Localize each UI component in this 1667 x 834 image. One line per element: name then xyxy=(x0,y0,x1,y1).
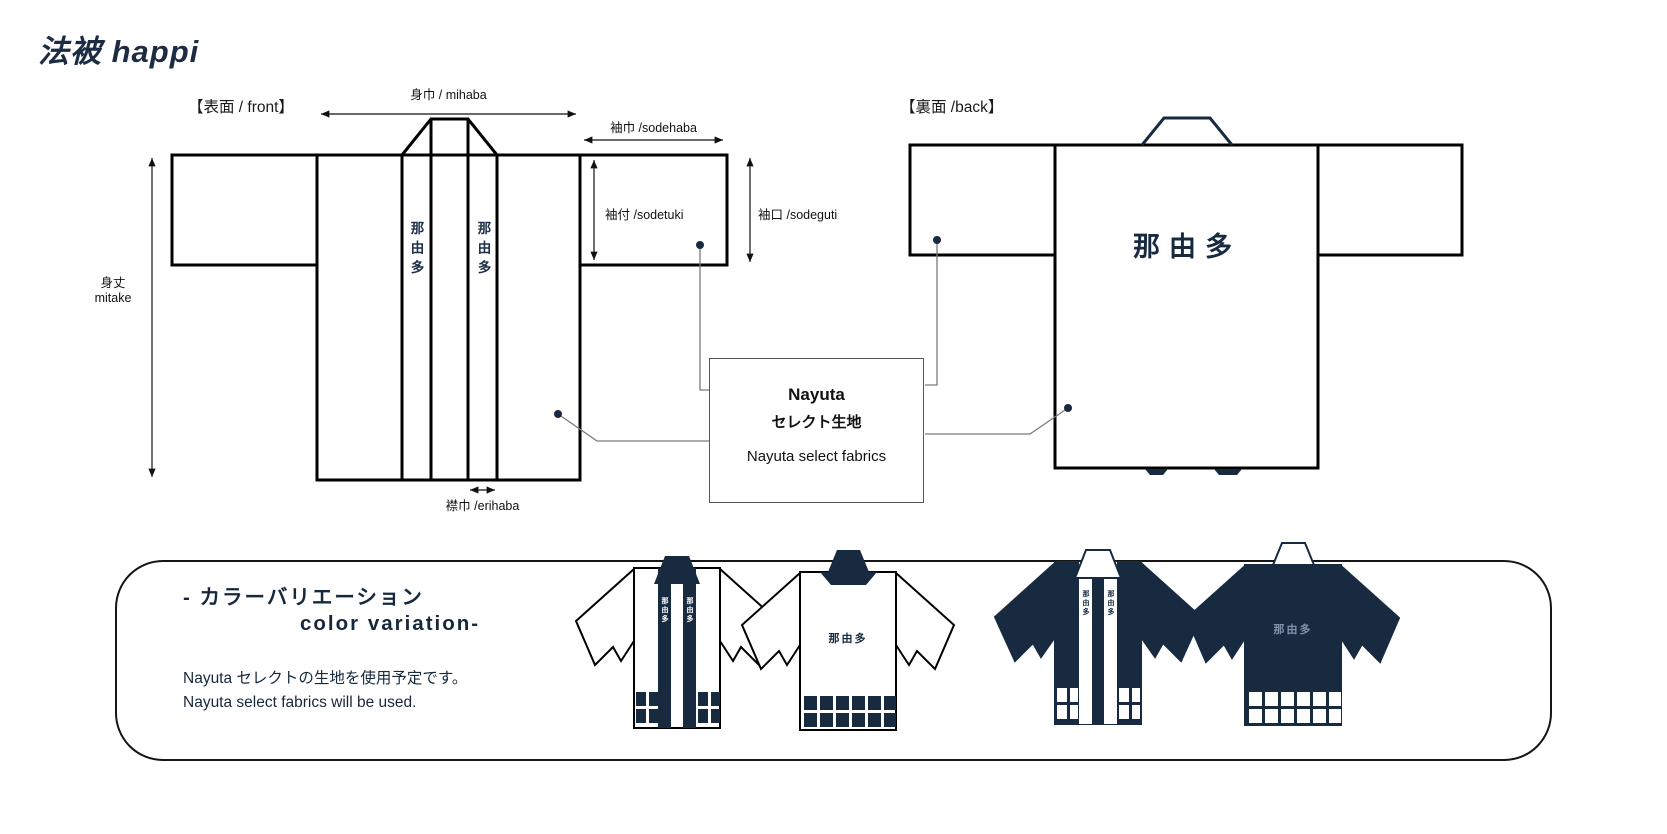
back-print: 那由多 xyxy=(1098,225,1276,264)
front-collar-print-left: 那由多 xyxy=(409,221,423,280)
fabric-box-title: Nayuta xyxy=(710,385,923,405)
page-title-jp: 法被 xyxy=(38,34,102,69)
back-body xyxy=(1055,145,1318,468)
fabric-box-subtitle: セレクト生地 xyxy=(710,411,923,432)
back-hem-mark xyxy=(1145,469,1168,475)
variant4-back-print: 那由多 xyxy=(1245,621,1341,637)
variant1-collar-print-right: 那由多 xyxy=(686,597,693,624)
sodetuki-label: 袖付 /sodetuki xyxy=(605,204,684,223)
variation-heading-jp: - カラーバリエーション xyxy=(183,580,424,610)
front-body xyxy=(317,155,580,480)
variation-note-en: Nayuta select fabrics will be used. xyxy=(183,694,416,712)
back-hem-mark xyxy=(1214,469,1242,475)
page-title: 法被 happi xyxy=(38,26,199,71)
callout-line-front-sleeve xyxy=(700,245,709,390)
callout-dot xyxy=(933,236,941,244)
fabric-box: Nayuta セレクト生地 Nayuta select fabrics xyxy=(709,358,924,503)
mitake-label-en: mitake xyxy=(80,291,146,306)
callout-line-front-body xyxy=(558,414,709,441)
back-section-label: 【裏面 /back】 xyxy=(900,95,1003,117)
front-view-drawing xyxy=(172,119,727,480)
back-collar xyxy=(1142,118,1232,145)
variant2-back-print: 那由多 xyxy=(800,630,896,646)
variant1-collar-print-left: 那由多 xyxy=(661,597,668,624)
variation-heading-en: color variation- xyxy=(300,612,480,636)
back-view-drawing xyxy=(910,118,1462,475)
sodehaba-label: 袖巾 /sodehaba xyxy=(580,117,727,136)
front-section-label: 【表面 / front】 xyxy=(188,95,294,117)
happi-spec-sheet: 法被 happi 【表面 / front】 【裏面 /back】 身巾 / mi… xyxy=(0,0,1667,834)
callout-line-back-sleeve xyxy=(925,240,937,385)
mitake-label: 身丈 mitake xyxy=(80,276,146,306)
back-left-sleeve xyxy=(910,145,1055,255)
callout-dot xyxy=(696,241,704,249)
erihaba-label: 襟巾 /erihaba xyxy=(420,495,545,514)
front-measure-arrows xyxy=(152,114,750,490)
back-right-sleeve xyxy=(1318,145,1462,255)
front-collar-peak xyxy=(402,119,497,155)
variant3-collar-print-right: 那由多 xyxy=(1107,590,1114,617)
variant3-collar-print-left: 那由多 xyxy=(1082,590,1089,617)
callout-line-back-body xyxy=(925,408,1068,434)
front-left-sleeve xyxy=(172,155,317,265)
sodeguti-label: 袖口 /sodeguti xyxy=(758,204,837,223)
mitake-label-jp: 身丈 xyxy=(80,276,146,291)
callout-dot xyxy=(1064,404,1072,412)
callout-dot xyxy=(554,410,562,418)
front-collar-print-right: 那由多 xyxy=(476,221,490,280)
page-title-en: happi xyxy=(112,34,200,69)
mihaba-label: 身巾 / mihaba xyxy=(317,84,580,103)
variation-note-jp: Nayuta セレクトの生地を使用予定です。 xyxy=(183,666,467,688)
fabric-box-caption: Nayuta select fabrics xyxy=(710,448,923,465)
